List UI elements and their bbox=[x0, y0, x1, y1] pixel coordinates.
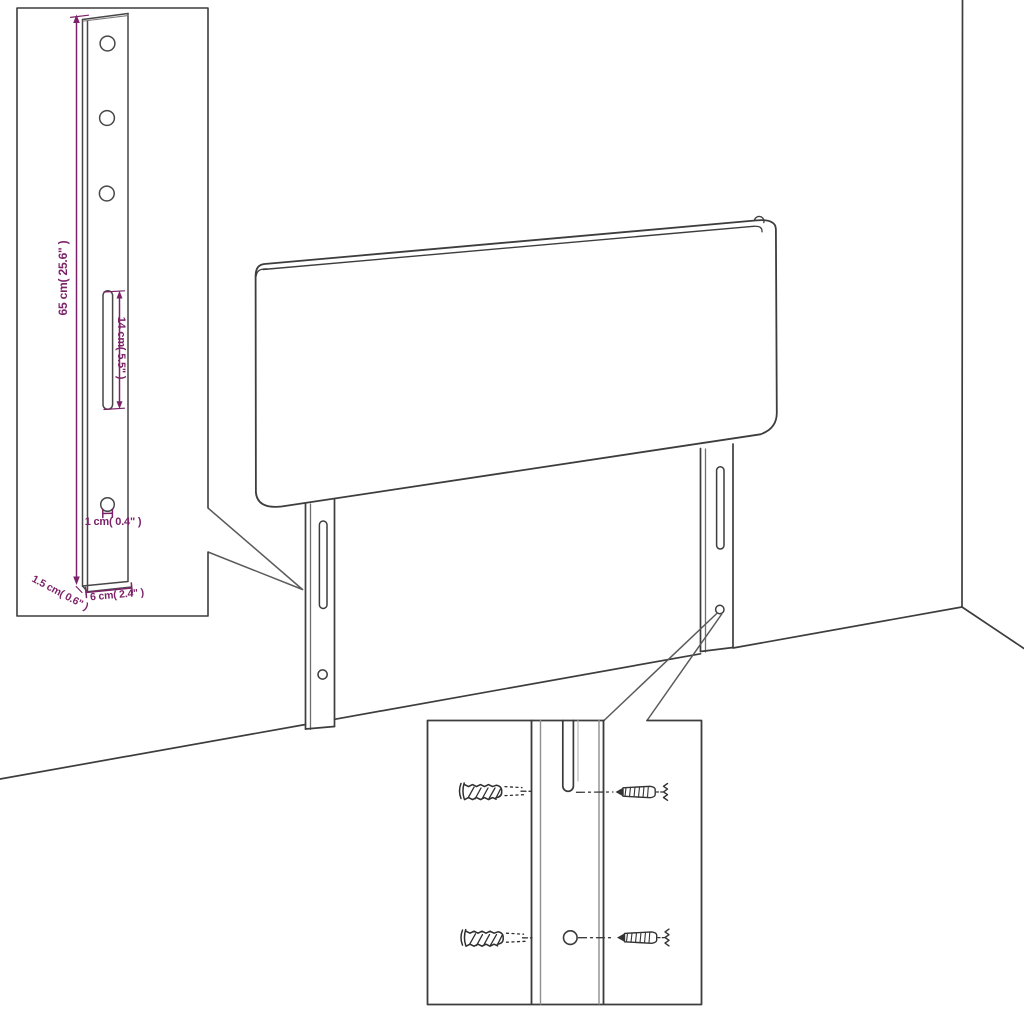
diagram-canvas: 65 cm( 25.6" ) 14 cm( 5.5" ) 1 cm( 0.4" … bbox=[0, 0, 1024, 1024]
right-leg-slot bbox=[717, 467, 724, 549]
headboard-panel bbox=[256, 216, 777, 506]
left-leg-hole bbox=[318, 670, 327, 679]
hardware-callout-pointer bbox=[604, 613, 722, 721]
hardware-inset-box bbox=[428, 721, 702, 1005]
bracket-slot bbox=[103, 291, 113, 410]
line-art bbox=[0, 0, 1024, 1024]
bracket-callout-pointer bbox=[208, 508, 303, 590]
dimension-label-slot-length: 14 cm( 5.5" ) bbox=[114, 309, 128, 387]
left-leg-slot bbox=[319, 521, 327, 609]
dimension-label-bracket-height: 65 cm( 25.6" ) bbox=[56, 228, 70, 328]
dimension-label-hole-diameter: 1 cm( 0.4" ) bbox=[77, 515, 149, 529]
wall-corner-line bbox=[962, 0, 963, 607]
bracket-hole-1 bbox=[100, 36, 115, 51]
floor-line-right bbox=[962, 607, 1024, 649]
headboard-left-leg bbox=[306, 500, 335, 730]
bracket-hole-3 bbox=[99, 186, 114, 201]
magnified-hole bbox=[564, 931, 578, 945]
bracket-hole-2 bbox=[100, 111, 115, 126]
hardware-detail-inset bbox=[428, 721, 702, 1005]
